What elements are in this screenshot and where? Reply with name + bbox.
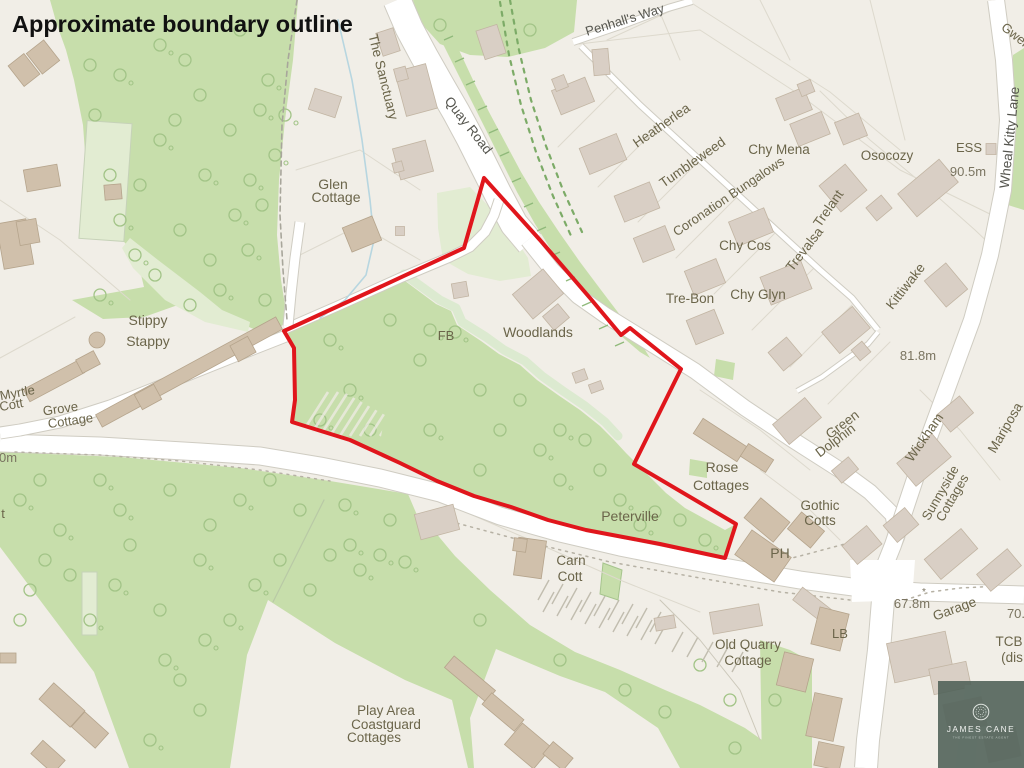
- svg-text:FB: FB: [438, 328, 455, 343]
- svg-text:ESS: ESS: [956, 140, 982, 155]
- svg-text:THE FINEST ESTATE AGENT: THE FINEST ESTATE AGENT: [953, 736, 1010, 740]
- svg-text:Cottage: Cottage: [311, 189, 360, 205]
- svg-text:Cottages: Cottages: [347, 730, 401, 745]
- svg-text:Osocozy: Osocozy: [861, 148, 914, 163]
- svg-text:Play Area: Play Area: [357, 703, 415, 718]
- svg-text:Stappy: Stappy: [126, 333, 170, 349]
- svg-text:81.8m: 81.8m: [900, 348, 936, 363]
- svg-text:t: t: [1, 506, 5, 521]
- svg-text:0m: 0m: [0, 450, 17, 465]
- svg-text:LB: LB: [832, 626, 848, 641]
- svg-text:Chy Glyn: Chy Glyn: [730, 287, 786, 302]
- svg-text:90.5m: 90.5m: [950, 164, 986, 179]
- svg-text:Chy Cos: Chy Cos: [719, 238, 771, 253]
- svg-text:Cotts: Cotts: [804, 513, 836, 528]
- svg-text:*: *: [922, 587, 926, 598]
- svg-text:(dis: (dis: [1001, 650, 1023, 665]
- svg-text:Cottages: Cottages: [693, 477, 749, 493]
- svg-text:Approximate boundary outline: Approximate boundary outline: [12, 11, 353, 37]
- svg-text:PH: PH: [770, 545, 789, 561]
- svg-text:67.8m: 67.8m: [894, 596, 930, 611]
- svg-text:Peterville: Peterville: [601, 508, 659, 524]
- svg-text:Old Quarry: Old Quarry: [715, 637, 781, 652]
- svg-text:Cott: Cott: [558, 569, 583, 584]
- svg-text:Woodlands: Woodlands: [503, 324, 573, 340]
- svg-text:Carn: Carn: [556, 553, 585, 568]
- svg-text:TCB: TCB: [996, 634, 1023, 649]
- svg-text:Tre-Bon: Tre-Bon: [666, 291, 714, 306]
- svg-text:70.: 70.: [1007, 606, 1024, 621]
- svg-text:JAMES CANE: JAMES CANE: [947, 724, 1016, 734]
- svg-text:Stippy: Stippy: [129, 312, 168, 328]
- svg-text:Cottage: Cottage: [724, 653, 771, 668]
- svg-text:Chy Mena: Chy Mena: [748, 142, 810, 157]
- svg-text:Rose: Rose: [706, 459, 739, 475]
- svg-text:Gothic: Gothic: [800, 498, 839, 513]
